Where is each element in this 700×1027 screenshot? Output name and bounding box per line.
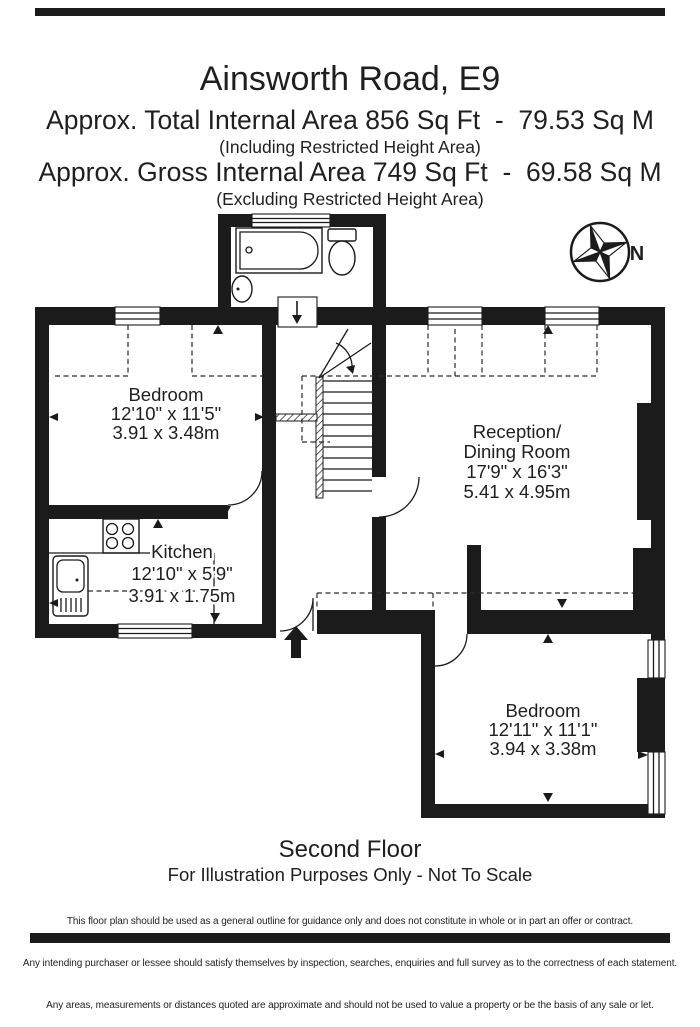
svg-text:12'10" x 11'5": 12'10" x 11'5" [111,403,221,424]
bathroom-step-opening [278,297,317,327]
bottom-divider-bar [30,933,670,943]
toilet-icon [328,229,356,275]
bathtub-icon [236,228,322,273]
window [252,214,330,227]
disclaimer-line: This floor plan should be used as a gene… [0,915,700,929]
svg-text:17'9" x 16'3": 17'9" x 16'3" [466,461,567,482]
dimension-arrow-icon [49,413,58,421]
dimension-arrow-icon [210,613,220,622]
dimension-arrow-icon [213,325,223,334]
dimension-arrow-icon [557,599,567,608]
dimension-arrow-icon [543,634,553,643]
svg-text:3.94 x 3.38m: 3.94 x 3.38m [490,738,597,759]
svg-text:Kitchen: Kitchen [151,541,213,562]
room-labels: Bedroom 12'10" x 11'5" 3.91 x 3.48m Rece… [111,384,598,759]
window [648,752,665,814]
stairs-down-arrow-icon [346,365,355,374]
svg-text:12'10" x 5'9": 12'10" x 5'9" [131,563,232,584]
dimension-arrow-icon [435,750,444,758]
bedroom-rear-label: Bedroom 12'11" x 11'1" 3.94 x 3.38m [488,700,597,759]
window [428,307,482,325]
svg-text:Reception/: Reception/ [473,421,562,442]
north-label: N [630,243,644,265]
window [545,307,599,325]
dimension-arrow-icon [543,793,553,802]
reception-label: Reception/ Dining Room 17'9" x 16'3" 5.4… [464,421,571,502]
svg-text:Bedroom: Bedroom [128,384,203,405]
window [118,624,192,638]
floor-label: Second Floor [0,836,700,864]
bathroom-sink-icon [232,276,252,302]
dimension-arrow-icon [638,751,648,759]
door-arc [435,634,467,666]
dimension-arrow-icon [153,519,163,528]
disclaimer-line: Any areas, measurements or distances quo… [0,999,700,1013]
door-arc [379,477,419,517]
door-arc [280,598,313,631]
kitchen-hob-icon [103,519,139,553]
staircase-icon [276,329,372,498]
svg-text:3.91 x 1.75m: 3.91 x 1.75m [129,585,236,606]
disclaimer: This floor plan should be used as a gene… [0,887,700,1027]
scale-note: For Illustration Purposes Only - Not To … [0,864,700,886]
kitchen-sink-icon [53,556,88,616]
svg-text:12'11" x 11'1": 12'11" x 11'1" [488,719,597,740]
door-arc [228,471,262,505]
svg-text:Bedroom: Bedroom [505,700,580,721]
svg-text:5.41 x 4.95m: 5.41 x 4.95m [464,481,571,502]
disclaimer-line: Any intending purchaser or lessee should… [0,957,700,971]
bedroom-front-label: Bedroom 12'10" x 11'5" 3.91 x 3.48m [111,384,221,443]
compass-icon: N [564,216,644,288]
window [648,640,665,678]
kitchen-label: Kitchen 12'10" x 5'9" 3.91 x 1.75m [129,541,236,606]
window [115,307,160,325]
svg-text:Dining Room: Dining Room [464,441,571,462]
svg-text:3.91 x 3.48m: 3.91 x 3.48m [113,422,220,443]
